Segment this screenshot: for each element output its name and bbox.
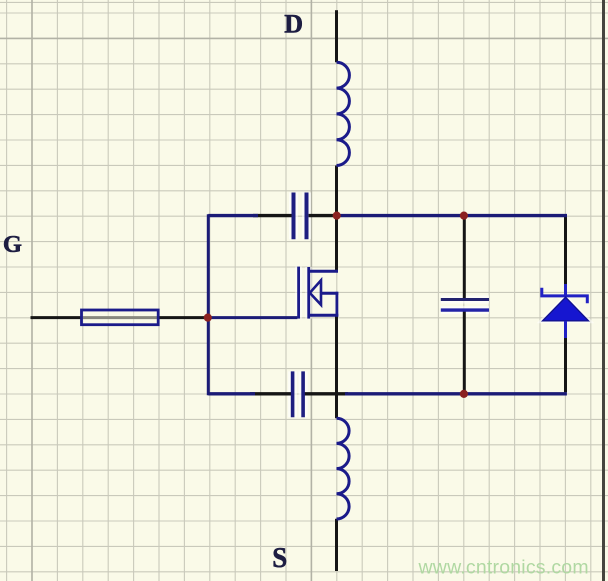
svg-text:S: S xyxy=(272,543,287,574)
svg-text:www.cntronics.com: www.cntronics.com xyxy=(418,557,589,579)
svg-text:G: G xyxy=(3,231,22,258)
svg-text:D: D xyxy=(284,9,303,38)
